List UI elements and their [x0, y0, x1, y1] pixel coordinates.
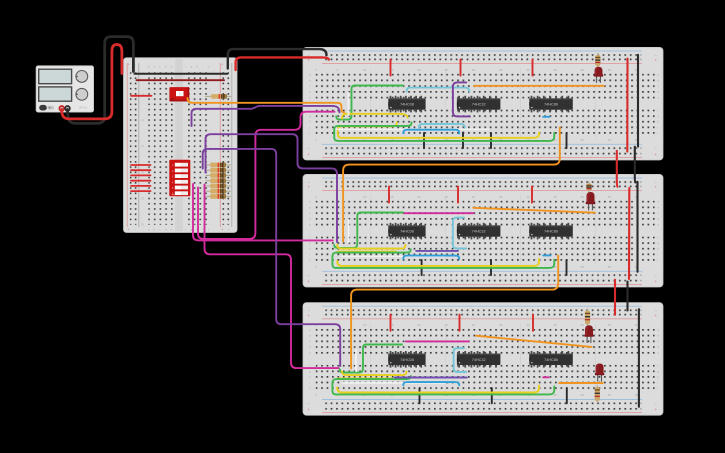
svg-text:55: 55	[608, 323, 612, 327]
svg-text:50: 50	[581, 265, 585, 269]
svg-text:40: 40	[526, 323, 530, 327]
svg-text:55: 55	[608, 265, 612, 269]
svg-text:35: 35	[499, 195, 503, 199]
svg-text:55: 55	[608, 68, 612, 72]
svg-text:45: 45	[553, 68, 557, 72]
svg-text:10: 10	[363, 323, 367, 327]
svg-text:20: 20	[417, 68, 421, 72]
svg-text:40: 40	[526, 195, 530, 199]
svg-text:35: 35	[499, 323, 503, 327]
svg-text:30: 30	[472, 68, 476, 72]
svg-text:45: 45	[553, 323, 557, 327]
svg-text:20: 20	[417, 195, 421, 199]
svg-text:55: 55	[608, 138, 612, 142]
svg-text:35: 35	[499, 68, 503, 72]
svg-text:25: 25	[445, 68, 449, 72]
svg-text:10: 10	[363, 68, 367, 72]
svg-text:74HC86: 74HC86	[544, 103, 558, 107]
svg-text:+: +	[308, 407, 311, 412]
svg-text:74HC86: 74HC86	[544, 358, 558, 362]
svg-text:+: +	[655, 58, 658, 63]
svg-text:55: 55	[608, 195, 612, 199]
svg-text:ON: ON	[171, 195, 175, 197]
svg-text:50: 50	[581, 68, 585, 72]
svg-text:+: +	[655, 152, 658, 157]
svg-text:+: +	[308, 152, 311, 157]
svg-text:74HC08: 74HC08	[400, 103, 414, 107]
svg-text:74HC32: 74HC32	[472, 103, 486, 107]
svg-text:+: +	[655, 185, 658, 190]
svg-text:25: 25	[445, 195, 449, 199]
svg-text:74HC86: 74HC86	[544, 230, 558, 234]
svg-text:+: +	[655, 313, 658, 318]
svg-text:+: +	[308, 313, 311, 318]
svg-text:50: 50	[581, 138, 585, 142]
svg-text:74HC32: 74HC32	[472, 358, 486, 362]
svg-text:+: +	[308, 279, 311, 284]
svg-text:20: 20	[417, 323, 421, 327]
svg-text:74HC32: 74HC32	[472, 230, 486, 234]
svg-text:74HC08: 74HC08	[400, 358, 414, 362]
svg-text:25: 25	[445, 323, 449, 327]
svg-text:40: 40	[526, 68, 530, 72]
svg-text:50: 50	[581, 323, 585, 327]
svg-text:+: +	[308, 185, 311, 190]
svg-text:15: 15	[390, 195, 394, 199]
svg-text:45: 45	[553, 393, 557, 397]
svg-text:+: +	[655, 407, 658, 412]
svg-text:55: 55	[608, 393, 612, 397]
svg-text:50: 50	[581, 195, 585, 199]
svg-text:74HC08: 74HC08	[400, 230, 414, 234]
svg-text:+: +	[655, 279, 658, 284]
svg-text:50: 50	[581, 393, 585, 397]
svg-text:10: 10	[363, 195, 367, 199]
svg-text:30: 30	[472, 195, 476, 199]
svg-text:30: 30	[472, 323, 476, 327]
svg-text:45: 45	[553, 195, 557, 199]
